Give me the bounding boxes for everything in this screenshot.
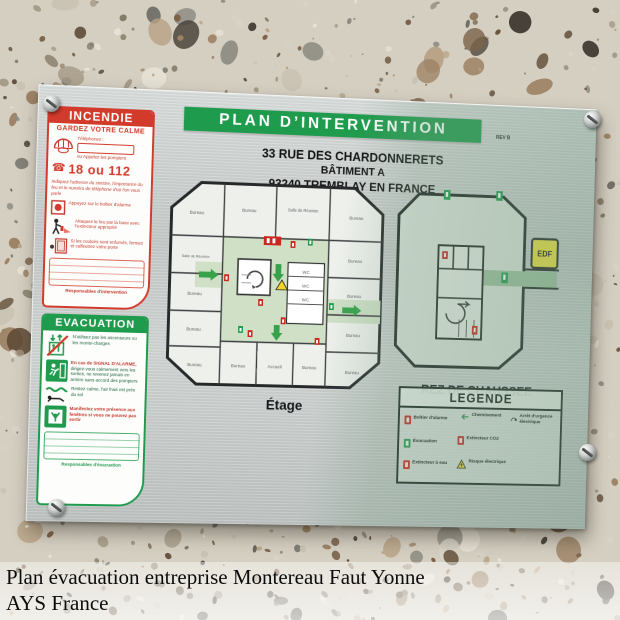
incendie-write-lines	[48, 257, 144, 288]
incendie-footer: Responsables d'intervention	[44, 287, 148, 295]
caption-line-2: AYS France	[6, 591, 614, 616]
svg-text:Bureau: Bureau	[187, 291, 202, 296]
caption-strip: Plan évacuation entreprise Montereau Fau…	[0, 562, 620, 620]
alarm-exit-block: En cas de SIGNAL D'ALARME, dirigez-vous …	[70, 360, 142, 385]
svg-text:Bureau: Bureau	[187, 362, 202, 367]
screw-bottom-left	[48, 499, 65, 516]
svg-text:Bureau: Bureau	[242, 208, 257, 213]
alarm-button-icon	[51, 199, 66, 215]
svg-text:Bureau: Bureau	[231, 363, 246, 368]
incendie-instruction: Indiquez l'adresse du sinistre, l'import…	[51, 179, 147, 200]
svg-text:Bureau: Bureau	[349, 216, 364, 221]
screw-top-left	[43, 95, 60, 112]
legend-body: Boîtier d'alarme Évacuation Extincteur à…	[398, 408, 560, 481]
step-window-text: Manifestez votre présence aux fenêtres s…	[69, 406, 140, 425]
svg-text:Bureau: Bureau	[347, 294, 362, 299]
plate-title-banner: PLAN D’INTERVENTION	[184, 107, 482, 143]
svg-text:Bureau: Bureau	[348, 259, 363, 264]
elevator-prohibited-icon	[46, 333, 69, 357]
wall-photo: PLAN D’INTERVENTION REV B 33 RUE DES CHA…	[0, 0, 620, 620]
edf-label: EDF	[537, 250, 552, 259]
firefighter-helmet-icon	[52, 135, 74, 154]
stairwell	[237, 259, 271, 295]
etage-label: Étage	[245, 396, 322, 413]
water-extinguisher-icon	[403, 460, 410, 469]
step-crawl-text: Restez calme, l'air frais est près du so…	[71, 386, 141, 399]
step-alarm-text: Appuyez sur le boîtier d'alarme	[69, 200, 131, 208]
floor-plan-etage: Bureau Bureau Salle de Réunion Bureau Bu…	[163, 176, 388, 395]
step-door-text: Si les couloirs sont enfumés, fermez et …	[70, 238, 145, 252]
evacuation-icon	[404, 439, 411, 448]
incendie-panel: INCENDIE GARDEZ VOTRE CALME Téléphonez :…	[42, 106, 155, 311]
call-note: ou Appelez les pompiers	[77, 153, 134, 161]
svg-text:Accueil: Accueil	[267, 364, 281, 369]
svg-text:Bureau: Bureau	[190, 210, 205, 215]
svg-text:WC: WC	[302, 270, 310, 275]
intervention-plate: PLAN D’INTERVENTION REV B 33 RUE DES CHA…	[26, 84, 597, 529]
evacuation-write-lines	[43, 431, 139, 461]
window-signal-icon	[44, 405, 66, 427]
route-arrow-icon	[458, 413, 469, 421]
emergency-exit-icon	[46, 359, 68, 382]
svg-text:Bureau: Bureau	[346, 333, 361, 338]
emergency-numbers: 18 ou 112	[68, 162, 131, 179]
svg-text:Bureau: Bureau	[186, 326, 201, 331]
evacuation-header: EVACUATION	[43, 315, 147, 333]
rdc-core	[436, 245, 484, 339]
svg-text:Bureau: Bureau	[345, 370, 360, 375]
step-exit-text: dirigez-vous calmement vers les sorties,…	[70, 366, 141, 385]
emergency-stop-icon	[510, 414, 517, 424]
floor-plan-rdc: EDF	[388, 187, 567, 384]
caption-line-1: Plan évacuation entreprise Montereau Fau…	[6, 565, 614, 590]
step-extinguisher-text: Attaquez le feu par la base avec l'extin…	[75, 218, 146, 232]
svg-text:Bureau: Bureau	[302, 365, 317, 370]
alarm-icon	[404, 415, 411, 424]
svg-text:WC: WC	[302, 284, 310, 289]
electrical-hazard-icon	[457, 459, 467, 469]
screw-top-right	[584, 111, 601, 128]
svg-text:WC: WC	[302, 297, 310, 302]
co2-extinguisher-icon	[457, 436, 464, 445]
door-icon	[49, 237, 67, 254]
evacuation-panel: EVACUATION N'utilisez pas les ascenseurs…	[36, 313, 149, 507]
phone-icon: ☎	[52, 163, 66, 175]
extinguisher-user-icon	[50, 217, 72, 235]
evacuation-footer: Responsables d'évacuation	[39, 461, 143, 468]
crawl-low-icon	[45, 385, 68, 403]
incendie-header: INCENDIE	[49, 108, 153, 127]
legend-box: LEGENDE Boîtier d'alarme Évacuation Exti…	[396, 386, 563, 486]
phone-block: Téléphonez : ou Appelez les pompiers	[77, 136, 135, 162]
revision-note: REV B	[496, 135, 510, 141]
screw-bottom-right	[579, 444, 596, 461]
step-elevator-text: N'utilisez pas les ascenseurs ou les mon…	[72, 334, 142, 347]
